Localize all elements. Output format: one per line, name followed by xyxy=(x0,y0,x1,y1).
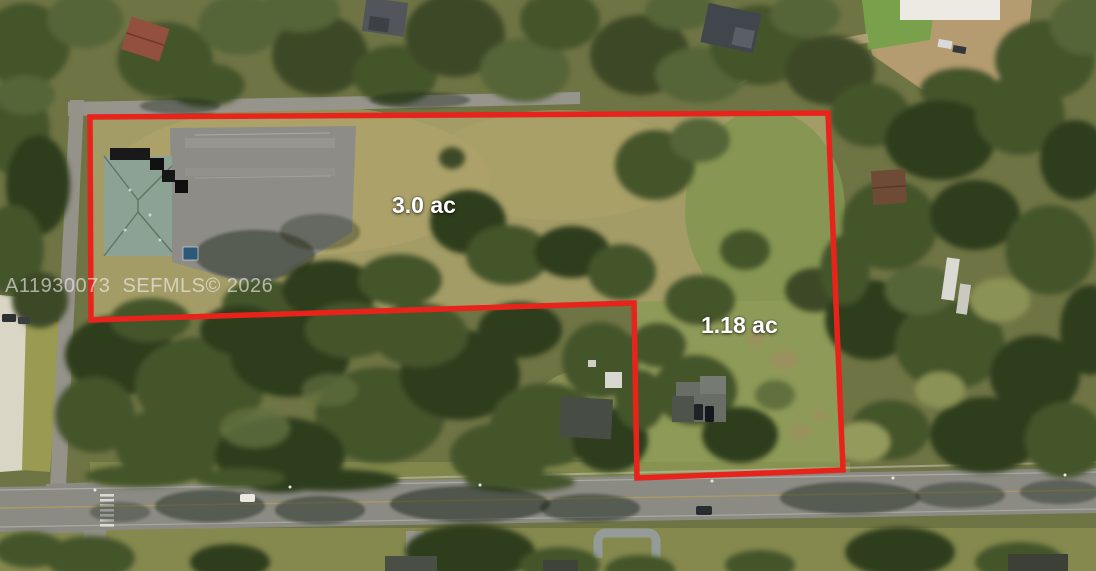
structure-brown-right xyxy=(871,169,907,205)
mls-watermark: A11930073 SEFMLS© 2026 xyxy=(5,276,273,296)
aerial-map: 3.0 ac 1.18 ac A11930073 SEFMLS© 2026 xyxy=(0,0,1096,571)
house-in-notch xyxy=(559,397,613,440)
white-car-on-road xyxy=(240,494,255,502)
parcel-label-1-18-ac: 1.18 ac xyxy=(701,314,778,337)
white-shed xyxy=(605,372,622,388)
dark-car-on-road xyxy=(696,506,712,515)
parcel-label-3-0-ac: 3.0 ac xyxy=(392,194,456,217)
blue-tarp xyxy=(183,247,198,260)
house-gray-roof-top-middle xyxy=(362,0,408,37)
